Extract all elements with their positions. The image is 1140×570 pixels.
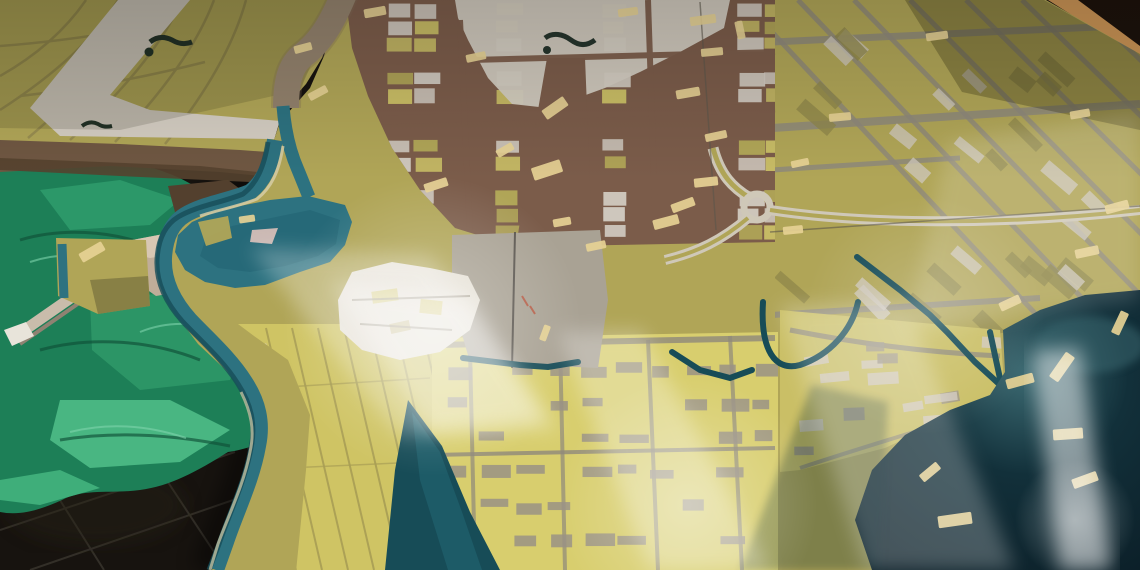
suburb-building: [481, 499, 509, 507]
fragment-water-edge: [62, 244, 64, 298]
suburb-building: [516, 503, 541, 514]
suburb-building: [482, 465, 511, 478]
scene-canvas: [0, 0, 1140, 570]
suburb-building: [514, 536, 536, 547]
photo-of-map-on-floor: [0, 0, 1140, 570]
vignette: [0, 0, 1140, 180]
suburb-building: [516, 465, 544, 474]
city-block: [605, 225, 626, 237]
city-block: [603, 207, 625, 221]
light-pool: [805, 195, 1045, 435]
city-block: [603, 192, 626, 206]
light-pool: [282, 176, 582, 476]
